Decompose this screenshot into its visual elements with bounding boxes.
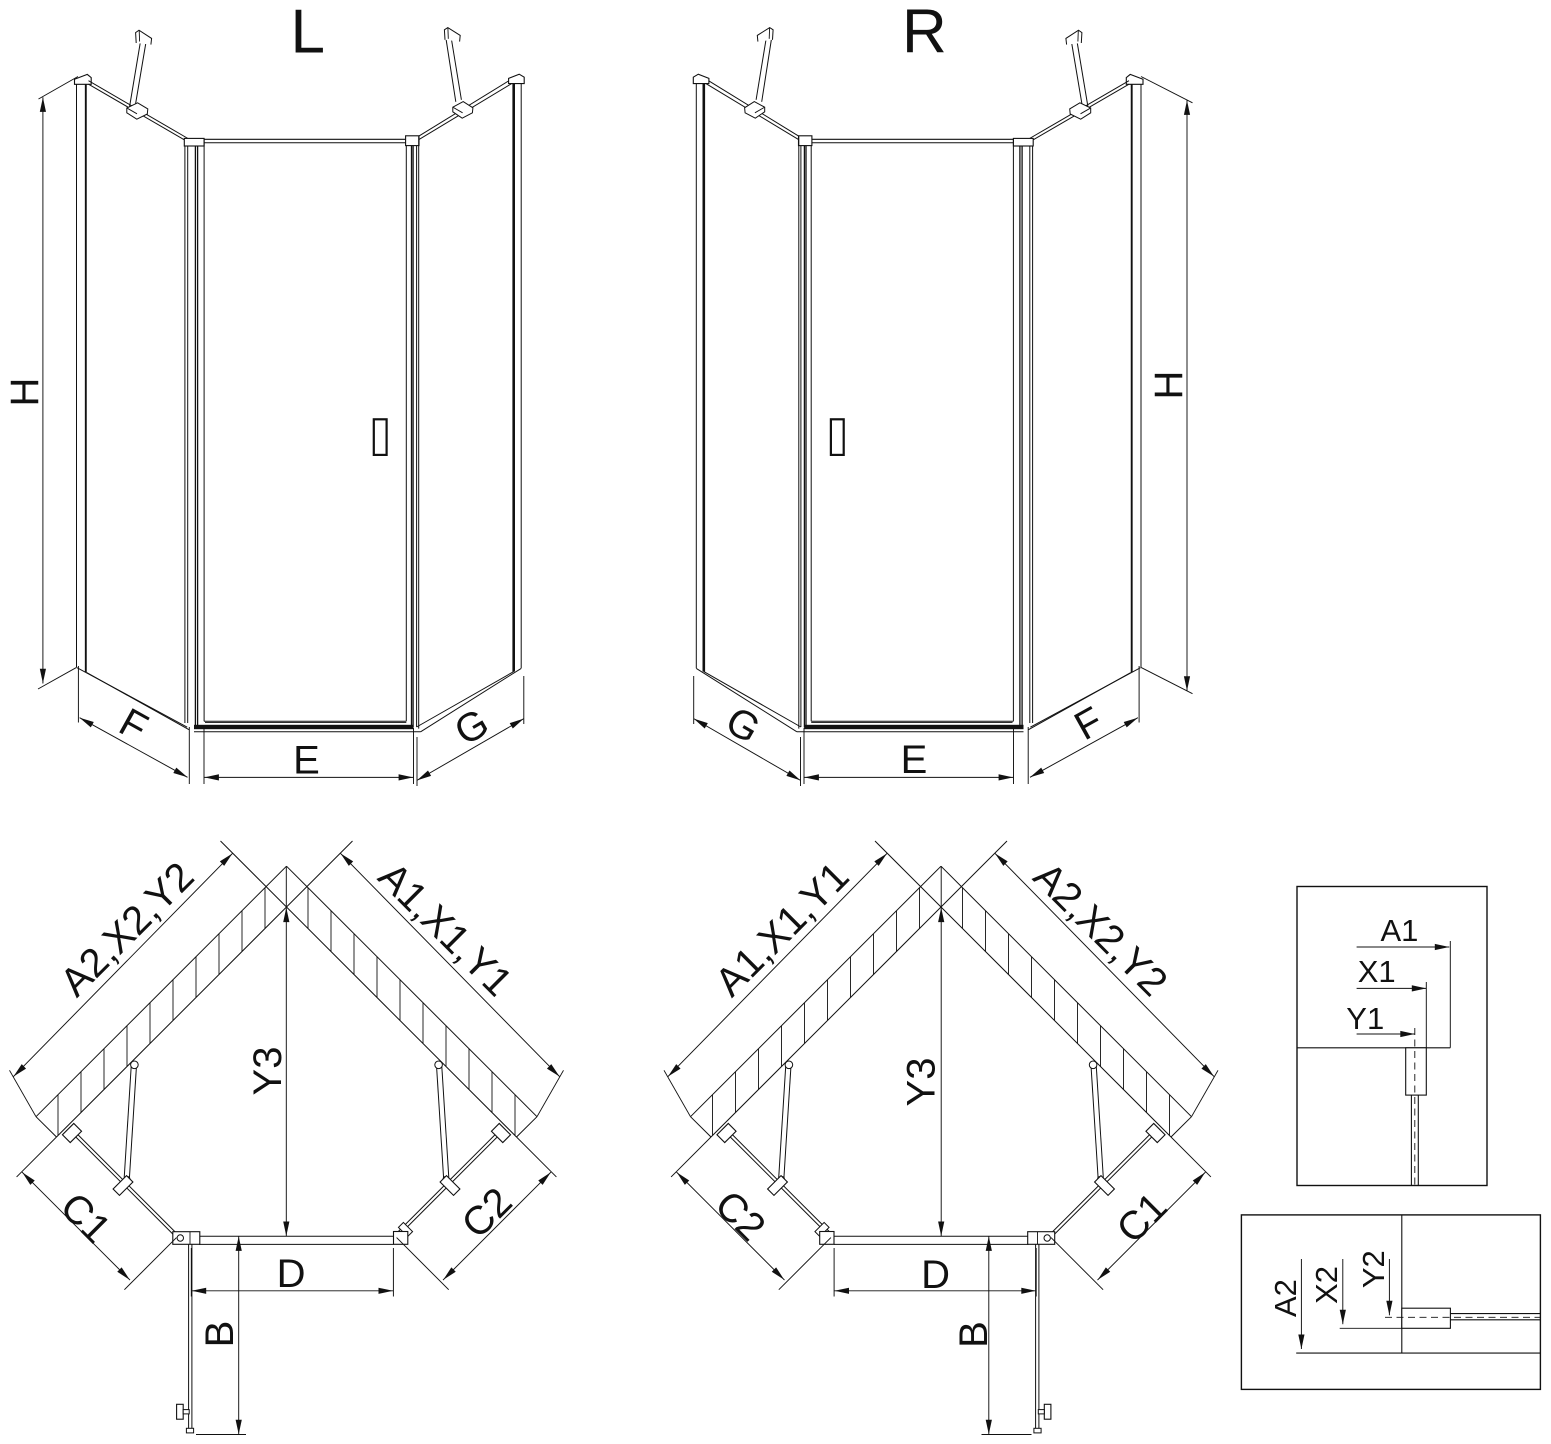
svg-text:Y3: Y3 — [246, 1047, 290, 1096]
svg-text:R: R — [902, 0, 947, 67]
svg-text:H: H — [1147, 371, 1191, 400]
svg-text:B: B — [198, 1321, 242, 1348]
svg-text:D: D — [277, 1252, 306, 1296]
svg-text:Y2: Y2 — [1356, 1250, 1391, 1288]
svg-text:X1: X1 — [1358, 954, 1396, 989]
svg-text:Y3: Y3 — [900, 1058, 944, 1107]
svg-text:A1: A1 — [1381, 913, 1419, 948]
svg-text:Y1: Y1 — [1346, 1001, 1384, 1036]
svg-text:E: E — [901, 738, 928, 782]
svg-text:A2: A2 — [1268, 1279, 1303, 1317]
svg-text:E: E — [293, 739, 320, 783]
svg-text:X2: X2 — [1309, 1266, 1344, 1304]
svg-text:D: D — [921, 1253, 950, 1297]
svg-text:L: L — [291, 0, 325, 67]
svg-text:B: B — [952, 1321, 996, 1348]
svg-text:H: H — [3, 378, 47, 407]
